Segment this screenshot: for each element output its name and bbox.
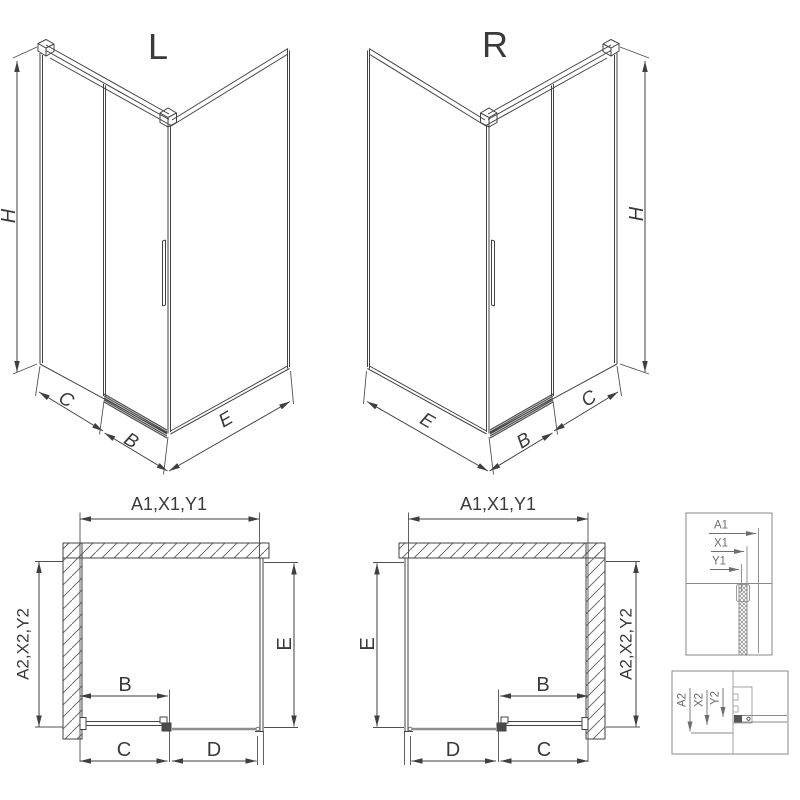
plan-left-dim-door: B: [118, 675, 131, 695]
detail-view-top: [686, 513, 772, 655]
iso-l-dim-height: H: [0, 209, 19, 223]
iso-l-view-label: L: [148, 29, 168, 65]
plan-left-dim-bottom-first: C: [117, 740, 131, 760]
iso-r-dim-height: H: [627, 207, 647, 221]
plan-left-dim-bottom-second: D: [207, 740, 221, 760]
iso-view-r: [364, 40, 650, 475]
detail-top-label-x1: X1: [714, 538, 728, 550]
iso-view-l: [13, 40, 294, 475]
plan-view-left: [35, 513, 298, 766]
detail-top-label-a1: A1: [714, 520, 728, 532]
detail-bottom-label-y2: Y2: [710, 691, 722, 705]
plan-right-dim-top: A1,X1,Y1: [460, 495, 536, 513]
technical-drawing-page: { "title": "Shower enclosure sliding-doo…: [0, 0, 800, 800]
plan-left-dim-right: E: [275, 637, 295, 650]
plan-right-dim-bottom-first: D: [446, 740, 460, 760]
detail-view-bottom: [672, 671, 788, 754]
detail-bottom-label-x2: X2: [694, 693, 706, 707]
plan-right-dim-door: B: [536, 675, 549, 695]
iso-r-view-label: R: [482, 27, 508, 63]
plan-right-dim-bottom-second: C: [537, 740, 551, 760]
plan-left-dim-top: A1,X1,Y1: [131, 495, 207, 513]
plan-right-dim-left: E: [358, 637, 378, 650]
detail-bottom-label-a2: A2: [677, 693, 689, 707]
plan-left-dim-left: A2,X2,Y2: [15, 608, 32, 680]
plan-view-right: [373, 513, 640, 766]
detail-top-label-y1: Y1: [712, 556, 726, 568]
plan-right-dim-right: A2,X2,Y2: [618, 608, 635, 680]
